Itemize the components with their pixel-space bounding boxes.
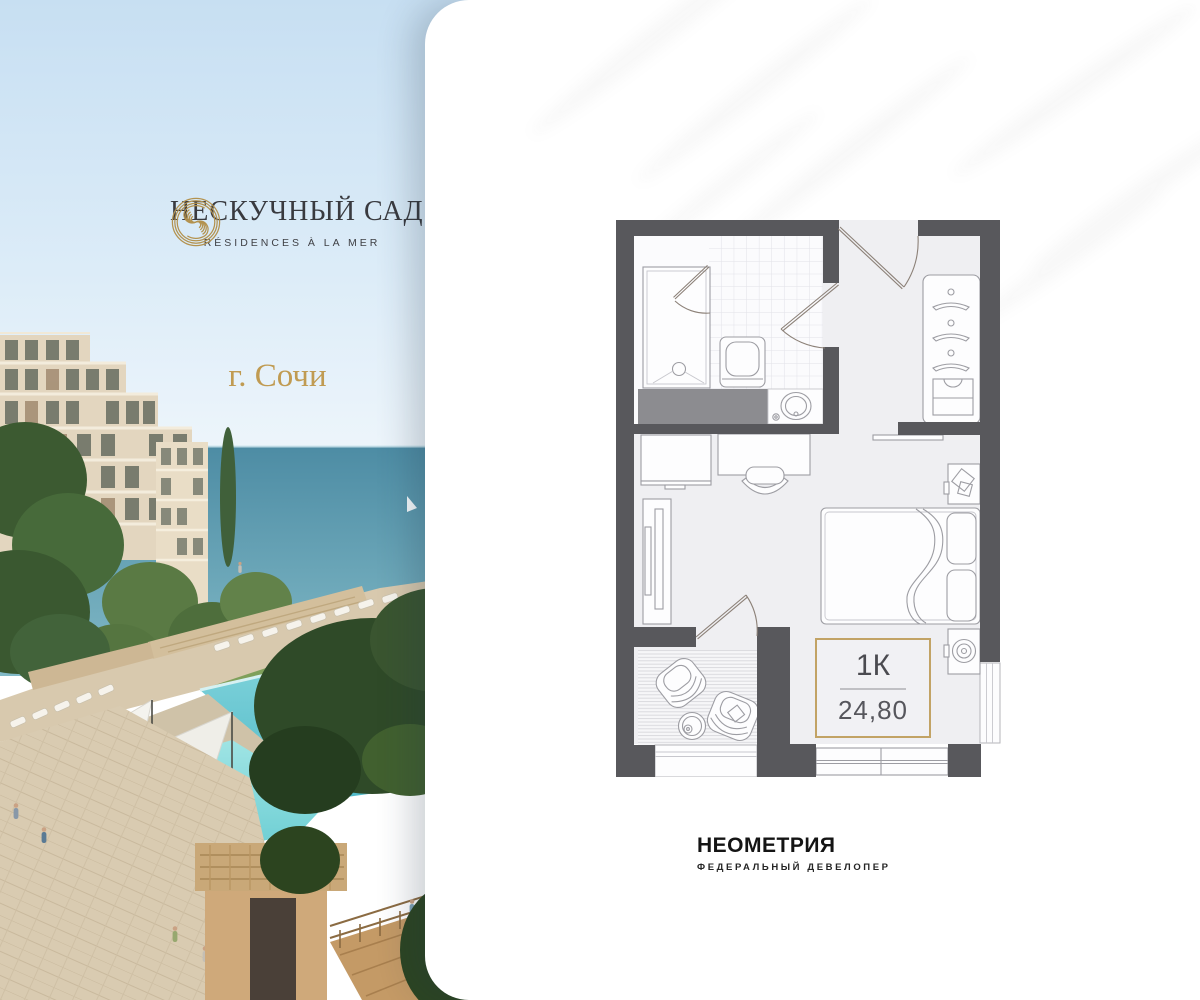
cypress-tree [220, 427, 236, 567]
bed [821, 508, 980, 624]
area-label-box: 1К 24,80 [816, 639, 930, 737]
pillow [947, 513, 976, 564]
brand-block: НЕСКУЧНЫЙ САД RÉSIDENCES À LA MER [170, 196, 414, 249]
window-bottom [816, 748, 948, 775]
brand-city: г. Сочи [185, 358, 370, 395]
sink [768, 389, 823, 424]
balcony-side-table [679, 713, 706, 740]
tv-unit [643, 499, 671, 624]
toilet [720, 337, 765, 387]
developer-logo: НЕОМЕТРИЯ ФЕДЕРАЛЬНЫЙ ДЕВЕЛОПЕР [697, 834, 891, 873]
developer-subtitle: ФЕДЕРАЛЬНЫЙ ДЕВЕЛОПЕР [697, 862, 891, 873]
washer-counter [638, 389, 768, 424]
window-right [980, 663, 1000, 743]
shower [643, 265, 710, 388]
plan-area-label: 24,80 [838, 695, 908, 725]
marketing-page: НЕСКУЧНЫЙ САД RÉSIDENCES À LA MER г. Соч… [0, 0, 1200, 1000]
pillow [947, 570, 976, 621]
spiral-monogram-icon [170, 196, 222, 248]
plan-card: 1К 24,80 НЕОМЕТРИЯ ФЕДЕРАЛЬНЫЙ ДЕВЕЛОПЕР [425, 0, 1200, 1000]
floor-plan: 1К 24,80 [613, 217, 1003, 777]
nightstand-top [944, 464, 980, 504]
wardrobe [923, 275, 980, 424]
kitchen-cabinet [641, 435, 711, 489]
resort-render-illustration [0, 0, 470, 1000]
resort-photo: НЕСКУЧНЫЙ САД RÉSIDENCES À LA MER г. Соч… [0, 0, 470, 1000]
console-shelf [873, 435, 943, 440]
balcony-window [655, 745, 757, 777]
plan-type-label: 1К [856, 649, 891, 682]
developer-name: НЕОМЕТРИЯ [697, 834, 891, 858]
nightstand-lamp [944, 629, 980, 674]
